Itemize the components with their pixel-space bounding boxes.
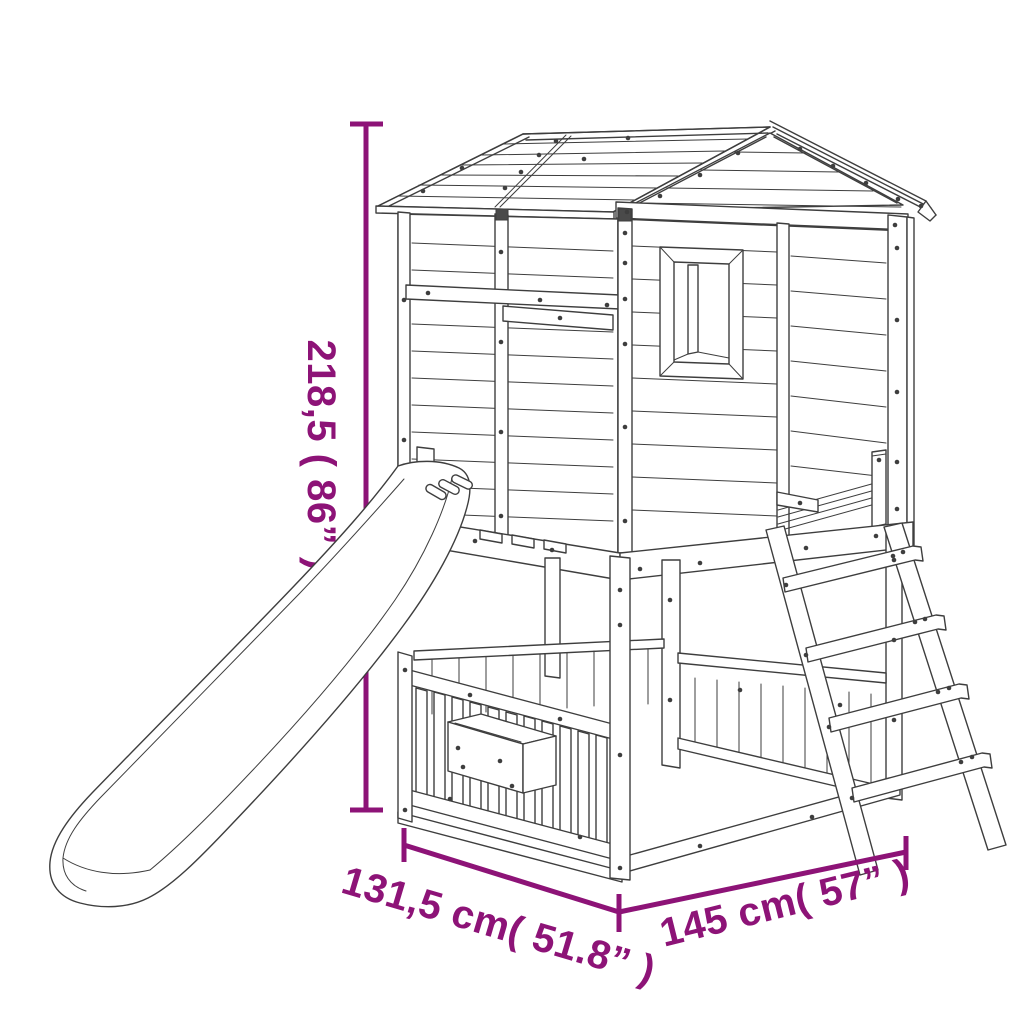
diagram-canvas: 218,5 ( 86” ) (0, 0, 1024, 1024)
planter-box (448, 714, 556, 793)
corner-post-lower (610, 556, 630, 880)
height-dimension-label: 218,5 ( 86” ) (299, 339, 343, 570)
window (660, 247, 743, 379)
width-dimension-label: 145 cm( 57” ) (656, 851, 915, 956)
front-wall (618, 208, 914, 553)
playhouse-dimension-diagram: 218,5 ( 86” ) (0, 0, 1024, 1024)
height-dimension-line (350, 124, 383, 810)
corner-post-upper (618, 208, 632, 553)
fence-end-post (398, 652, 412, 822)
playhouse-line-art (50, 121, 1006, 907)
